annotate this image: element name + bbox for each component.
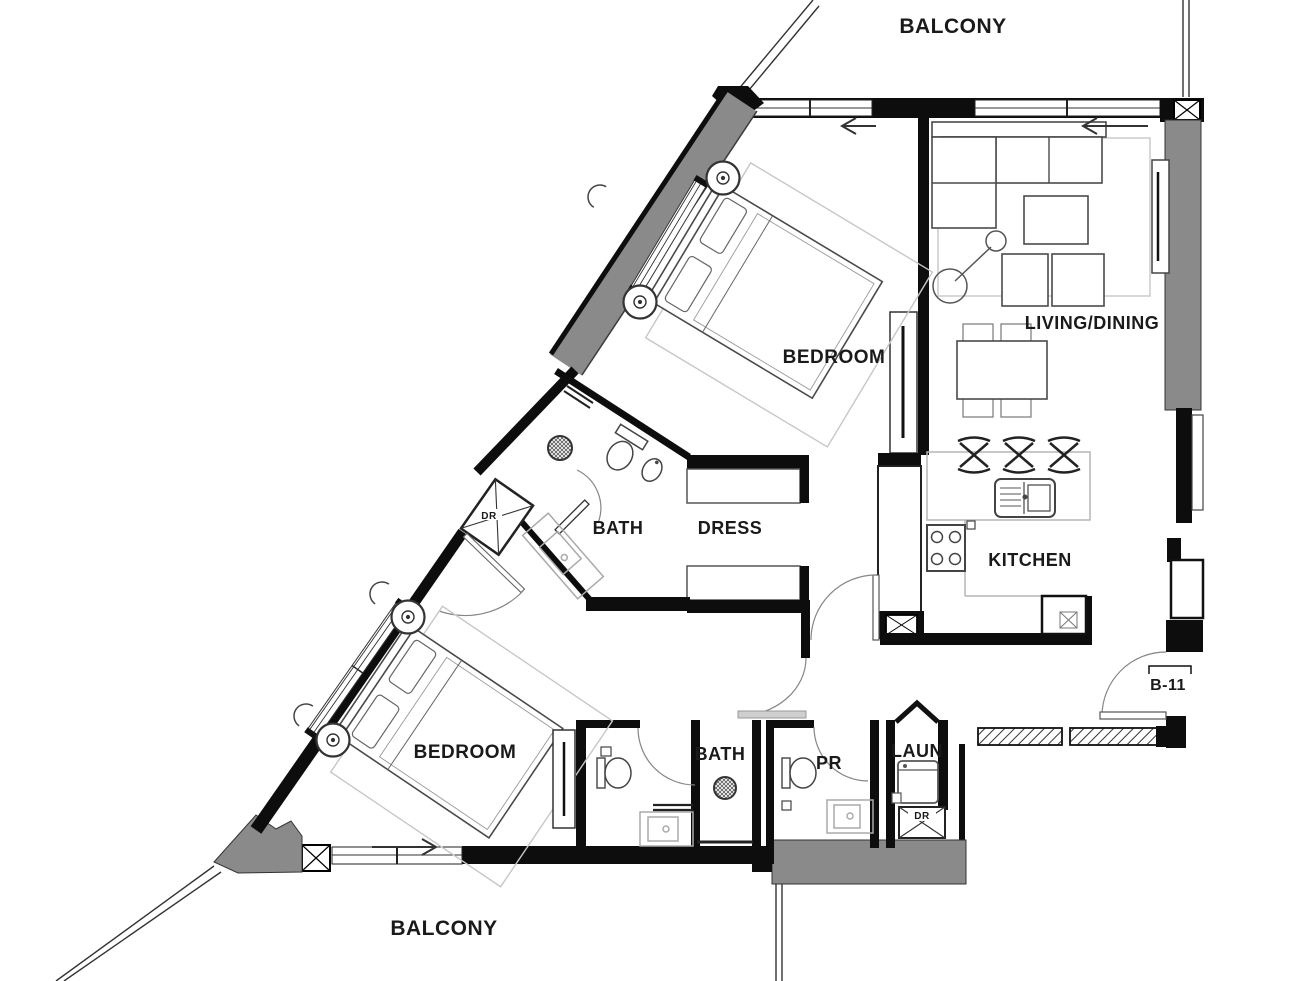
unit-tag: B-11 bbox=[1149, 666, 1191, 694]
duct-top-label: DR bbox=[481, 511, 497, 522]
bar-stools bbox=[958, 438, 1080, 473]
dining-set bbox=[957, 324, 1047, 417]
vanity bbox=[827, 800, 873, 833]
laun-label: LAUN bbox=[891, 741, 943, 761]
bath-top-fixtures bbox=[523, 386, 666, 599]
shower-drain bbox=[714, 777, 736, 799]
hatched-wall-right bbox=[1070, 728, 1158, 745]
unit-tag-label: B-11 bbox=[1150, 677, 1186, 694]
sink bbox=[638, 455, 666, 485]
stove bbox=[927, 525, 965, 571]
hatched-wall-left bbox=[978, 728, 1062, 745]
kitchen-sink bbox=[995, 479, 1055, 517]
shear-wall-bottom bbox=[772, 840, 966, 884]
laundry-door-fold bbox=[896, 703, 938, 722]
window-bottom bbox=[332, 847, 462, 864]
floor-plan-canvas: DR bbox=[0, 0, 1308, 981]
living-room-furniture bbox=[932, 122, 1169, 417]
dishwasher bbox=[1042, 596, 1086, 634]
armchair bbox=[1052, 254, 1104, 306]
laundry-fixtures: DR bbox=[892, 761, 945, 838]
bath-top-label: BATH bbox=[593, 518, 644, 538]
toilet bbox=[605, 758, 631, 788]
window-top-left bbox=[750, 100, 872, 116]
shower-drain bbox=[548, 436, 572, 460]
armchair bbox=[1002, 254, 1048, 306]
duct-bottom-label: DR bbox=[914, 811, 930, 822]
kitchen-label: KITCHEN bbox=[988, 550, 1072, 570]
floor-lamp bbox=[933, 231, 1006, 303]
column-box-bottom-left bbox=[302, 845, 330, 871]
dryer-box: DR bbox=[899, 807, 945, 838]
kitchen-fixtures bbox=[927, 438, 1090, 635]
coffee-table bbox=[1024, 196, 1088, 244]
column-box-top-right bbox=[1174, 100, 1200, 120]
wardrobe-bedroom-top bbox=[890, 312, 917, 453]
living-dining-label: LIVING/DINING bbox=[1025, 313, 1160, 333]
wardrobe-bedroom-bottom bbox=[553, 730, 575, 828]
vanity bbox=[640, 812, 693, 846]
shear-wall-right bbox=[1165, 120, 1201, 410]
column-box-shaft bbox=[886, 615, 917, 635]
toilet bbox=[598, 424, 647, 477]
balcony-top-label: BALCONY bbox=[899, 15, 1006, 38]
washer bbox=[892, 761, 938, 803]
window-top-right bbox=[975, 100, 1160, 116]
floorplan-sheet: DR bbox=[0, 0, 1308, 981]
bath-bottom-label: BATH bbox=[695, 744, 746, 764]
pr-label: PR bbox=[816, 753, 842, 773]
toilet bbox=[790, 758, 816, 788]
tv-console bbox=[1152, 160, 1169, 273]
bedroom-bottom-label: BEDROOM bbox=[414, 742, 517, 763]
bedroom-top-label: BEDROOM bbox=[783, 347, 886, 368]
balcony-bottom-label: BALCONY bbox=[390, 917, 497, 940]
dress-label: DRESS bbox=[698, 518, 763, 538]
